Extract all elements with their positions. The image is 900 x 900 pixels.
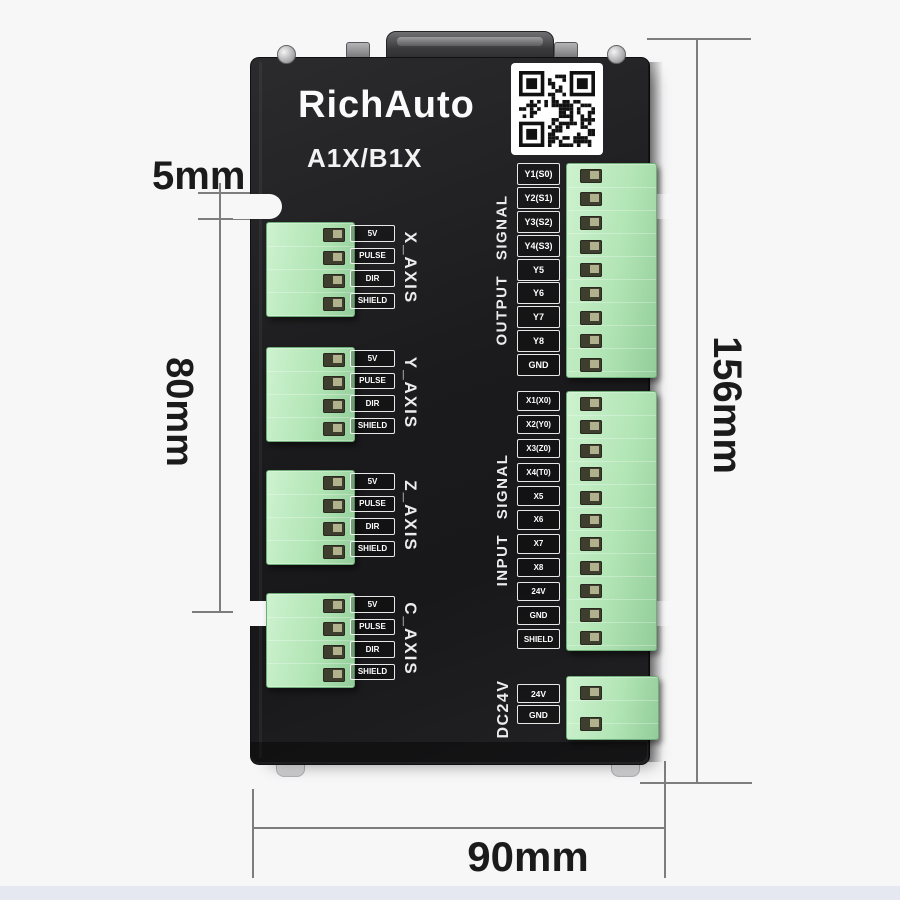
y-axis-label: Y_AXIS	[399, 345, 421, 441]
dim-156mm-vertical-line	[696, 39, 698, 784]
terminal-pin	[580, 397, 602, 411]
terminal-pin	[323, 545, 345, 559]
terminal-pin-label: 5V	[350, 473, 395, 490]
terminal-pin-label: Y4(S3)	[517, 235, 560, 257]
x-axis-terminal-block	[266, 222, 355, 317]
terminal-pin	[323, 297, 345, 311]
dim-label-5mm: 5mm	[152, 156, 245, 196]
terminal-pin-label: PULSE	[350, 496, 395, 513]
terminal-pin	[323, 376, 345, 390]
terminal-pin-label: X2(Y0)	[517, 415, 560, 435]
z-axis-pin-labels: 5VPULSEDIRSHIELD	[350, 473, 395, 557]
x-axis-pin-labels: 5VPULSEDIRSHIELD	[350, 225, 395, 309]
terminal-pin	[580, 287, 602, 301]
terminal-pin	[323, 228, 345, 242]
terminal-pin-label: SHIELD	[517, 629, 560, 649]
output-signal-terminal-block	[566, 163, 657, 378]
dim-label-156mm: 156mm	[701, 320, 747, 490]
terminal-pin	[580, 491, 602, 505]
mounting-slot-top-left	[233, 194, 282, 219]
terminal-pin-label: X8	[517, 558, 560, 578]
y-axis-terminal-block	[266, 347, 355, 442]
terminal-pin-label: Y8	[517, 330, 560, 352]
dim-156mm-bottom-tick	[640, 782, 752, 784]
output-signal-labels: Y1(S0)Y2(S1)Y3(S2)Y4(S3)Y5Y6Y7Y8GND	[517, 163, 560, 376]
x-axis-label: X_AXIS	[399, 220, 421, 316]
terminal-pin-label: X1(X0)	[517, 391, 560, 411]
terminal-pin-label: DIR	[350, 270, 395, 287]
z-axis-terminal-block	[266, 470, 355, 565]
terminal-pin-label: DIR	[350, 518, 395, 535]
terminal-pin-label: Y3(S2)	[517, 211, 560, 233]
terminal-pin-label: X4(T0)	[517, 463, 560, 483]
dim-90mm-horizontal-line	[253, 827, 666, 829]
terminal-pin-label: Y1(S0)	[517, 163, 560, 185]
output-signal-title: OUTPUT SIGNAL	[489, 164, 515, 377]
terminal-pin	[580, 240, 602, 254]
terminal-pin	[580, 444, 602, 458]
terminal-pin	[323, 399, 345, 413]
terminal-pin	[580, 334, 602, 348]
terminal-pin	[580, 192, 602, 206]
db-connector-shell	[397, 37, 543, 46]
input-signal-title: INPUT SIGNAL	[489, 391, 515, 649]
terminal-pin-label: Y7	[517, 306, 560, 328]
terminal-pin-label: DIR	[350, 395, 395, 412]
input-signal-terminal-block	[566, 391, 657, 651]
terminal-pin	[580, 537, 602, 551]
product-dimension-diagram: 5mm 80mm 156mm 90mm RichAuto A1X/B1X 5VP…	[0, 0, 900, 900]
terminal-pin	[323, 274, 345, 288]
terminal-pin	[323, 622, 345, 636]
terminal-pin	[323, 353, 345, 367]
terminal-pin-label: PULSE	[350, 248, 395, 265]
dim-80mm-vertical-line	[219, 183, 221, 613]
terminal-pin-label: DIR	[350, 641, 395, 658]
terminal-pin	[323, 251, 345, 265]
c-axis-pin-labels: 5VPULSEDIRSHIELD	[350, 596, 395, 680]
terminal-pin-label: X5	[517, 486, 560, 506]
terminal-pin	[323, 476, 345, 490]
terminal-pin-label: X7	[517, 534, 560, 554]
terminal-pin	[580, 608, 602, 622]
terminal-pin	[580, 420, 602, 434]
page-bottom-strip	[0, 886, 900, 900]
terminal-pin	[323, 499, 345, 513]
terminal-pin	[580, 169, 602, 183]
terminal-pin	[580, 216, 602, 230]
terminal-pin	[580, 358, 602, 372]
terminal-pin	[580, 584, 602, 598]
terminal-pin	[580, 467, 602, 481]
z-axis-label: Z_AXIS	[399, 468, 421, 564]
terminal-pin-label: 24V	[517, 684, 560, 703]
terminal-pin-label: SHIELD	[350, 664, 395, 681]
terminal-pin	[580, 686, 602, 700]
terminal-pin-label: 5V	[350, 350, 395, 367]
terminal-pin-label: PULSE	[350, 619, 395, 636]
input-signal-labels: X1(X0)X2(Y0)X3(Z0)X4(T0)X5X6X7X824VGNDSH…	[517, 391, 560, 649]
terminal-pin-label: SHIELD	[350, 541, 395, 558]
terminal-pin-label: Y6	[517, 282, 560, 304]
board-bottom-shade	[251, 742, 647, 762]
y-axis-pin-labels: 5VPULSEDIRSHIELD	[350, 350, 395, 434]
power-title: DC24V	[491, 668, 517, 750]
c-axis-terminal-block	[266, 593, 355, 688]
terminal-pin-label: X3(Z0)	[517, 439, 560, 459]
terminal-pin	[580, 311, 602, 325]
terminal-pin-label: PULSE	[350, 373, 395, 390]
terminal-pin	[323, 645, 345, 659]
terminal-pin	[323, 422, 345, 436]
corner-screw-left	[277, 45, 296, 64]
terminal-pin	[580, 514, 602, 528]
c-axis-label: C_AXIS	[399, 591, 421, 687]
power-labels: 24VGND	[517, 684, 560, 724]
dim-label-90mm: 90mm	[428, 836, 628, 878]
power-terminal-block	[566, 676, 659, 740]
terminal-pin-label: 5V	[350, 596, 395, 613]
brand-name: RichAuto	[298, 84, 475, 127]
terminal-pin	[323, 599, 345, 613]
terminal-pin	[580, 717, 602, 731]
dim-label-80mm: 80mm	[154, 342, 198, 482]
terminal-pin-label: X6	[517, 510, 560, 530]
terminal-pin-label: Y5	[517, 259, 560, 281]
corner-screw-right	[607, 45, 626, 64]
terminal-pin	[580, 263, 602, 277]
terminal-pin-label: GND	[517, 705, 560, 724]
qr-code-icon	[511, 63, 603, 155]
terminal-pin-label: SHIELD	[350, 418, 395, 435]
terminal-pin	[580, 561, 602, 575]
terminal-pin	[323, 522, 345, 536]
terminal-pin-label: Y2(S1)	[517, 187, 560, 209]
dim-90mm-left-extension	[252, 789, 254, 878]
dim-156mm-top-tick	[647, 38, 751, 40]
terminal-pin	[580, 631, 602, 645]
terminal-pin	[323, 668, 345, 682]
model-number: A1X/B1X	[307, 143, 422, 174]
terminal-pin-label: GND	[517, 606, 560, 626]
terminal-pin-label: GND	[517, 354, 560, 376]
dim-90mm-right-extension	[664, 761, 666, 878]
terminal-pin-label: SHIELD	[350, 293, 395, 310]
terminal-pin-label: 24V	[517, 582, 560, 602]
terminal-pin-label: 5V	[350, 225, 395, 242]
board-edge-seam	[259, 62, 262, 758]
